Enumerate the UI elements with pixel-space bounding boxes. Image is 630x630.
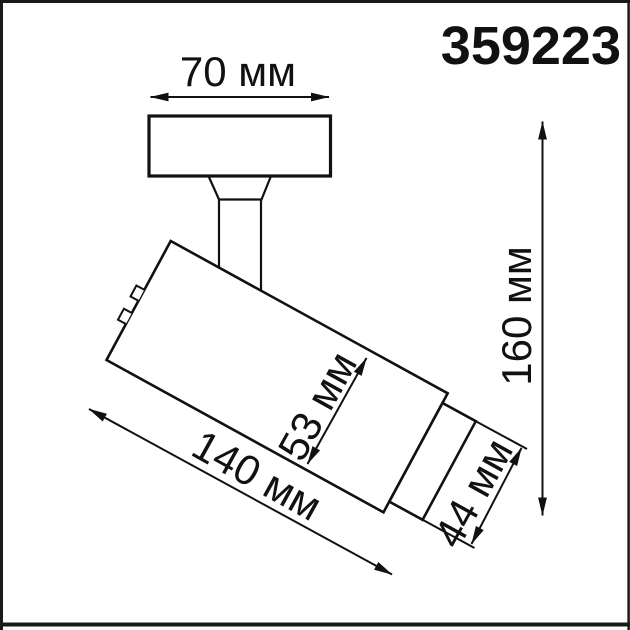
- overall-height-label: 160 мм: [493, 246, 540, 386]
- article-number: 359223: [441, 16, 621, 76]
- mounting-base: [149, 116, 331, 176]
- base-neck: [209, 176, 272, 200]
- product-dimension-diagram: 359223 70 мм 160 мм 53 мм 140 мм 44 мм: [0, 0, 630, 630]
- base-width-label: 70 мм: [180, 48, 296, 95]
- dimension-drawing-canvas: 359223 70 мм 160 мм 53 мм 140 мм 44 мм: [0, 0, 630, 630]
